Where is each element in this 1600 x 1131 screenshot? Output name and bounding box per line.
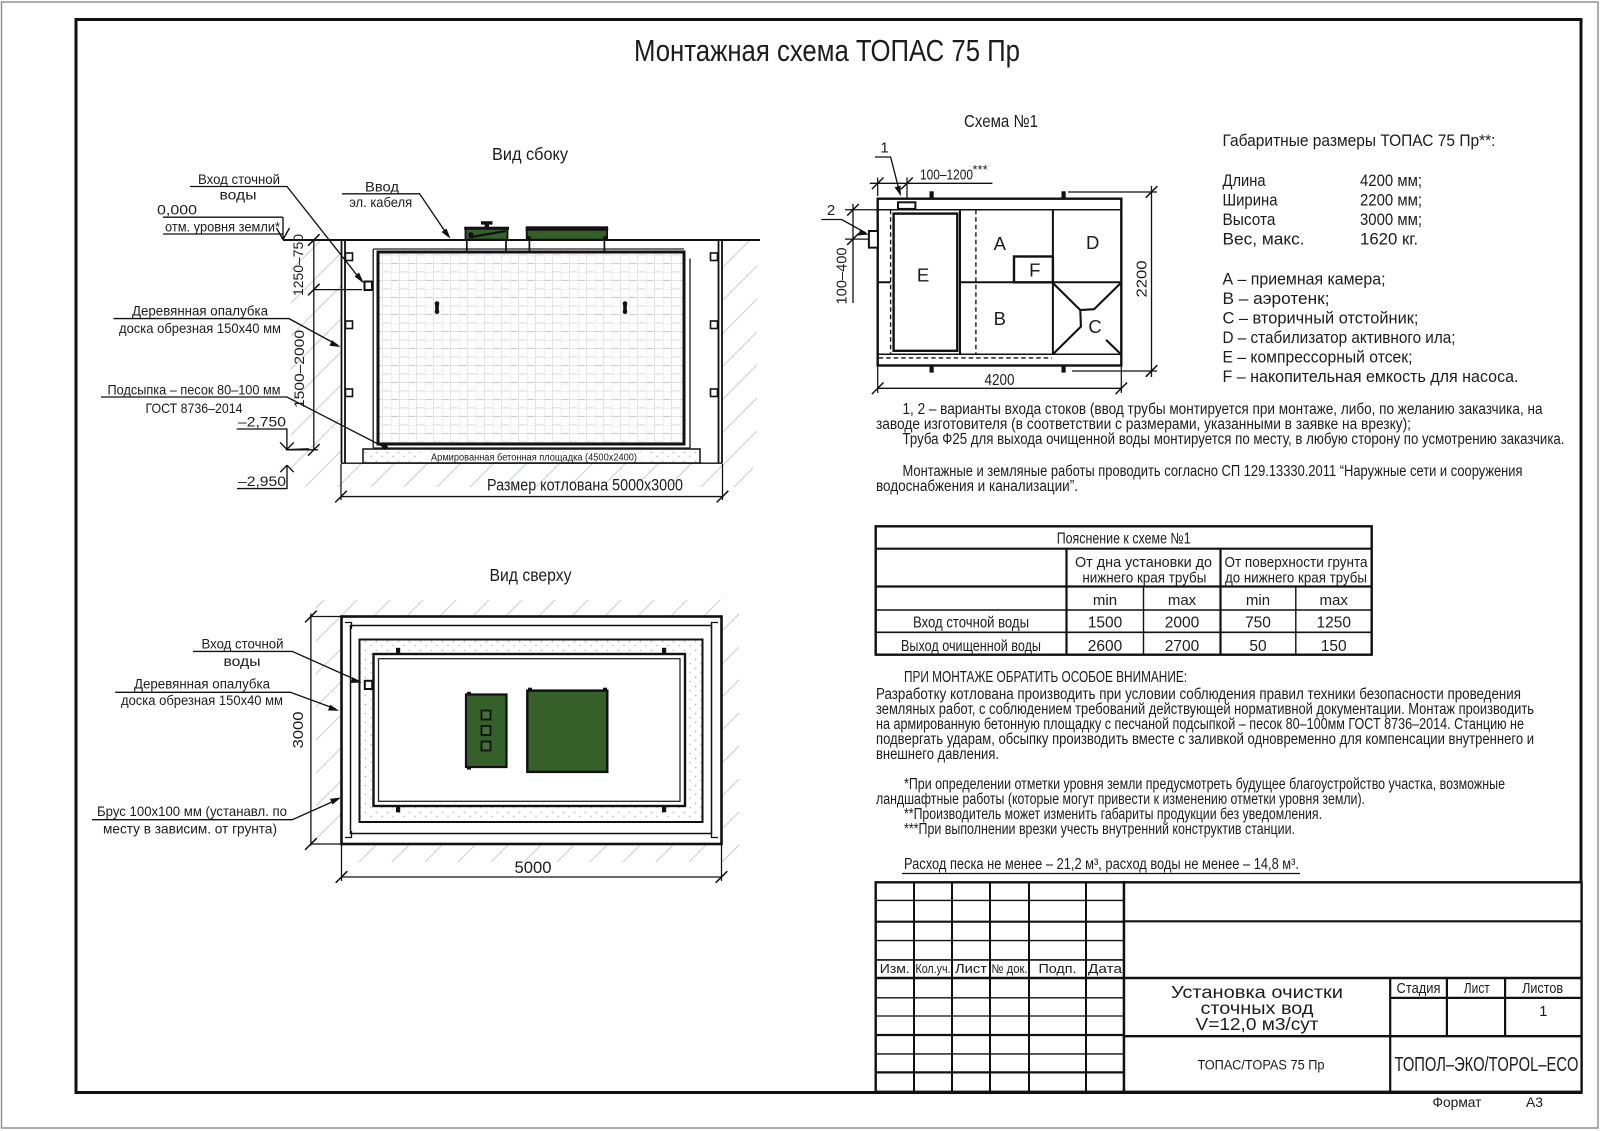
svg-text:E: E: [917, 265, 929, 286]
svg-text:2200: 2200: [1134, 261, 1151, 298]
svg-text:min: min: [1246, 592, 1270, 609]
svg-text:max: max: [1320, 592, 1349, 609]
svg-text:Размер котлована 5000х3000: Размер котлована 5000х3000: [487, 477, 683, 495]
svg-text:Лист: Лист: [1464, 981, 1490, 997]
svg-text:***При выполнении врезки учест: ***При выполнении врезки учесть внутренн…: [904, 821, 1295, 838]
svg-text:Армированная бетонная площадка: Армированная бетонная площадка (4500х240…: [431, 452, 637, 464]
svg-text:до нижнего края трубы: до нижнего края трубы: [1225, 570, 1367, 587]
svg-text:ПРИ МОНТАЖЕ ОБРАТИТЬ ОСОБОЕ ВН: ПРИ МОНТАЖЕ ОБРАТИТЬ ОСОБОЕ ВНИМАНИЕ:: [904, 669, 1187, 686]
svg-text:***: ***: [973, 162, 988, 177]
svg-text:А – приемная камера;: А – приемная камера;: [1223, 270, 1386, 289]
svg-text:Расход песка не менее – 21,2 м: Расход песка не менее – 21,2 м³, расход …: [904, 856, 1299, 873]
svg-text:ГОСТ 8736–2014: ГОСТ 8736–2014: [146, 400, 243, 416]
svg-text:Труба Ф25 для выхода очищенной: Труба Ф25 для выхода очищенной воды монт…: [903, 431, 1565, 448]
svg-text:Брус 100х100 мм (устанавл. по: Брус 100х100 мм (устанавл. по: [97, 803, 287, 819]
svg-text:Пояснение к схеме №1: Пояснение к схеме №1: [1057, 531, 1191, 548]
svg-text:Вид сверху: Вид сверху: [490, 565, 572, 585]
svg-text:Подп.: Подп.: [1039, 962, 1077, 976]
svg-text:водоснабжения и канализации”.: водоснабжения и канализации”.: [876, 478, 1078, 495]
svg-text:ТОПАС/TOPAS 75 Пр: ТОПАС/TOPAS 75 Пр: [1198, 1058, 1325, 1073]
svg-text:доска обрезная 150х40 мм: доска обрезная 150х40 мм: [119, 320, 281, 336]
svg-text:50: 50: [1249, 638, 1267, 655]
svg-text:Кол.уч.: Кол.уч.: [916, 962, 951, 976]
svg-text:C: C: [1088, 316, 1101, 337]
svg-text:От поверхности грунта: От поверхности грунта: [1225, 554, 1369, 571]
svg-text:max: max: [1168, 592, 1197, 609]
svg-text:Схема №1: Схема №1: [964, 111, 1038, 131]
svg-text:Дата: Дата: [1088, 962, 1122, 976]
svg-text:2000: 2000: [1165, 615, 1200, 632]
svg-text:Длина: Длина: [1223, 171, 1266, 190]
svg-text:2: 2: [827, 202, 835, 219]
svg-text:1250: 1250: [1316, 615, 1351, 632]
svg-text:внешнего давления.: внешнего давления.: [876, 746, 999, 763]
svg-text:Габаритные размеры ТОПАС 75 Пр: Габаритные размеры ТОПАС 75 Пр**:: [1223, 131, 1496, 150]
svg-text:2600: 2600: [1088, 638, 1123, 655]
svg-text:Выход очищенной воды: Выход очищенной воды: [901, 638, 1041, 655]
svg-text:1: 1: [1539, 1003, 1547, 1020]
svg-text:5000: 5000: [515, 859, 552, 877]
svg-text:От дна установки до: От дна установки до: [1075, 554, 1212, 571]
svg-text:Высота: Высота: [1223, 210, 1276, 229]
svg-text:F: F: [1029, 260, 1040, 281]
svg-text:В – аэротенк;: В – аэротенк;: [1223, 289, 1330, 308]
svg-text:А3: А3: [1526, 1095, 1543, 1110]
svg-text:Листов: Листов: [1522, 981, 1563, 997]
svg-text:№ док.: № док.: [992, 962, 1028, 976]
svg-text:V=12,0 м3/сут: V=12,0 м3/сут: [1196, 1014, 1319, 1034]
svg-text:Вход сточной воды: Вход сточной воды: [913, 615, 1029, 632]
svg-text:Вход сточной: Вход сточной: [198, 171, 280, 187]
svg-text:Изм.: Изм.: [880, 962, 910, 976]
svg-text:С – вторичный отстойник;: С – вторичный отстойник;: [1223, 309, 1419, 328]
svg-text:0,000: 0,000: [157, 202, 197, 218]
svg-text:доска обрезная 150х40 мм: доска обрезная 150х40 мм: [121, 692, 283, 708]
svg-text:2700: 2700: [1165, 638, 1200, 655]
svg-text:эл. кабеля: эл. кабеля: [349, 194, 412, 210]
svg-text:D: D: [1086, 232, 1099, 253]
svg-text:Е – компрессорный отсек;: Е – компрессорный отсек;: [1223, 348, 1413, 367]
svg-text:отм. уровня земли*: отм. уровня земли*: [165, 219, 280, 235]
svg-text:750: 750: [1245, 615, 1271, 632]
svg-text:Вход сточной: Вход сточной: [202, 636, 284, 652]
svg-text:Формат: Формат: [1433, 1095, 1482, 1110]
svg-text:Ввод: Ввод: [365, 179, 399, 195]
svg-text:Лист: Лист: [955, 962, 987, 976]
svg-text:Стадия: Стадия: [1397, 981, 1441, 997]
svg-text:Монтажная схема ТОПАС 75 Пр: Монтажная схема ТОПАС 75 Пр: [634, 33, 1020, 68]
svg-text:D – стабилизатор активного ила: D – стабилизатор активного ила;: [1223, 328, 1456, 347]
svg-text:1250–750: 1250–750: [290, 234, 306, 296]
svg-text:–2,950: –2,950: [238, 473, 286, 489]
svg-text:месту в зависим. от грунта): месту в зависим. от грунта): [103, 820, 277, 836]
svg-text:100–1200: 100–1200: [920, 166, 973, 183]
svg-text:Деревянная опалубка: Деревянная опалубка: [134, 675, 270, 691]
svg-text:ТОПОЛ–ЭКО/TOPOL–ECO: ТОПОЛ–ЭКО/TOPOL–ECO: [1395, 1053, 1579, 1076]
svg-text:2200 мм;: 2200 мм;: [1360, 191, 1422, 210]
svg-text:–2,750: –2,750: [238, 414, 286, 430]
svg-text:4200: 4200: [985, 372, 1015, 389]
svg-text:Вид сбоку: Вид сбоку: [492, 144, 568, 164]
svg-text:min: min: [1093, 592, 1117, 609]
svg-text:Деревянная опалубка: Деревянная опалубка: [132, 303, 268, 319]
svg-text:3000 мм;: 3000 мм;: [1360, 210, 1422, 229]
svg-text:1500–2000: 1500–2000: [291, 330, 307, 408]
svg-text:1500: 1500: [1088, 615, 1123, 632]
svg-text:Вес, макс.: Вес, макс.: [1223, 230, 1305, 249]
svg-text:B: B: [994, 308, 1006, 329]
svg-text:3000: 3000: [290, 712, 307, 749]
svg-text:Ширина: Ширина: [1223, 191, 1278, 210]
svg-text:1: 1: [880, 140, 888, 157]
svg-text:нижнего края трубы: нижнего края трубы: [1082, 570, 1206, 587]
svg-text:Подсыпка – песок 80–100 мм: Подсыпка – песок 80–100 мм: [108, 382, 281, 398]
svg-text:A: A: [994, 233, 1007, 254]
svg-text:1620 кг.: 1620 кг.: [1360, 230, 1418, 249]
svg-text:воды: воды: [224, 653, 261, 669]
svg-text:воды: воды: [220, 187, 257, 203]
svg-text:F – накопительная емкость для: F – накопительная емкость для насоса.: [1223, 367, 1519, 386]
svg-text:150: 150: [1321, 638, 1347, 655]
svg-text:4200 мм;: 4200 мм;: [1360, 171, 1422, 190]
svg-text:100–400: 100–400: [834, 248, 851, 305]
